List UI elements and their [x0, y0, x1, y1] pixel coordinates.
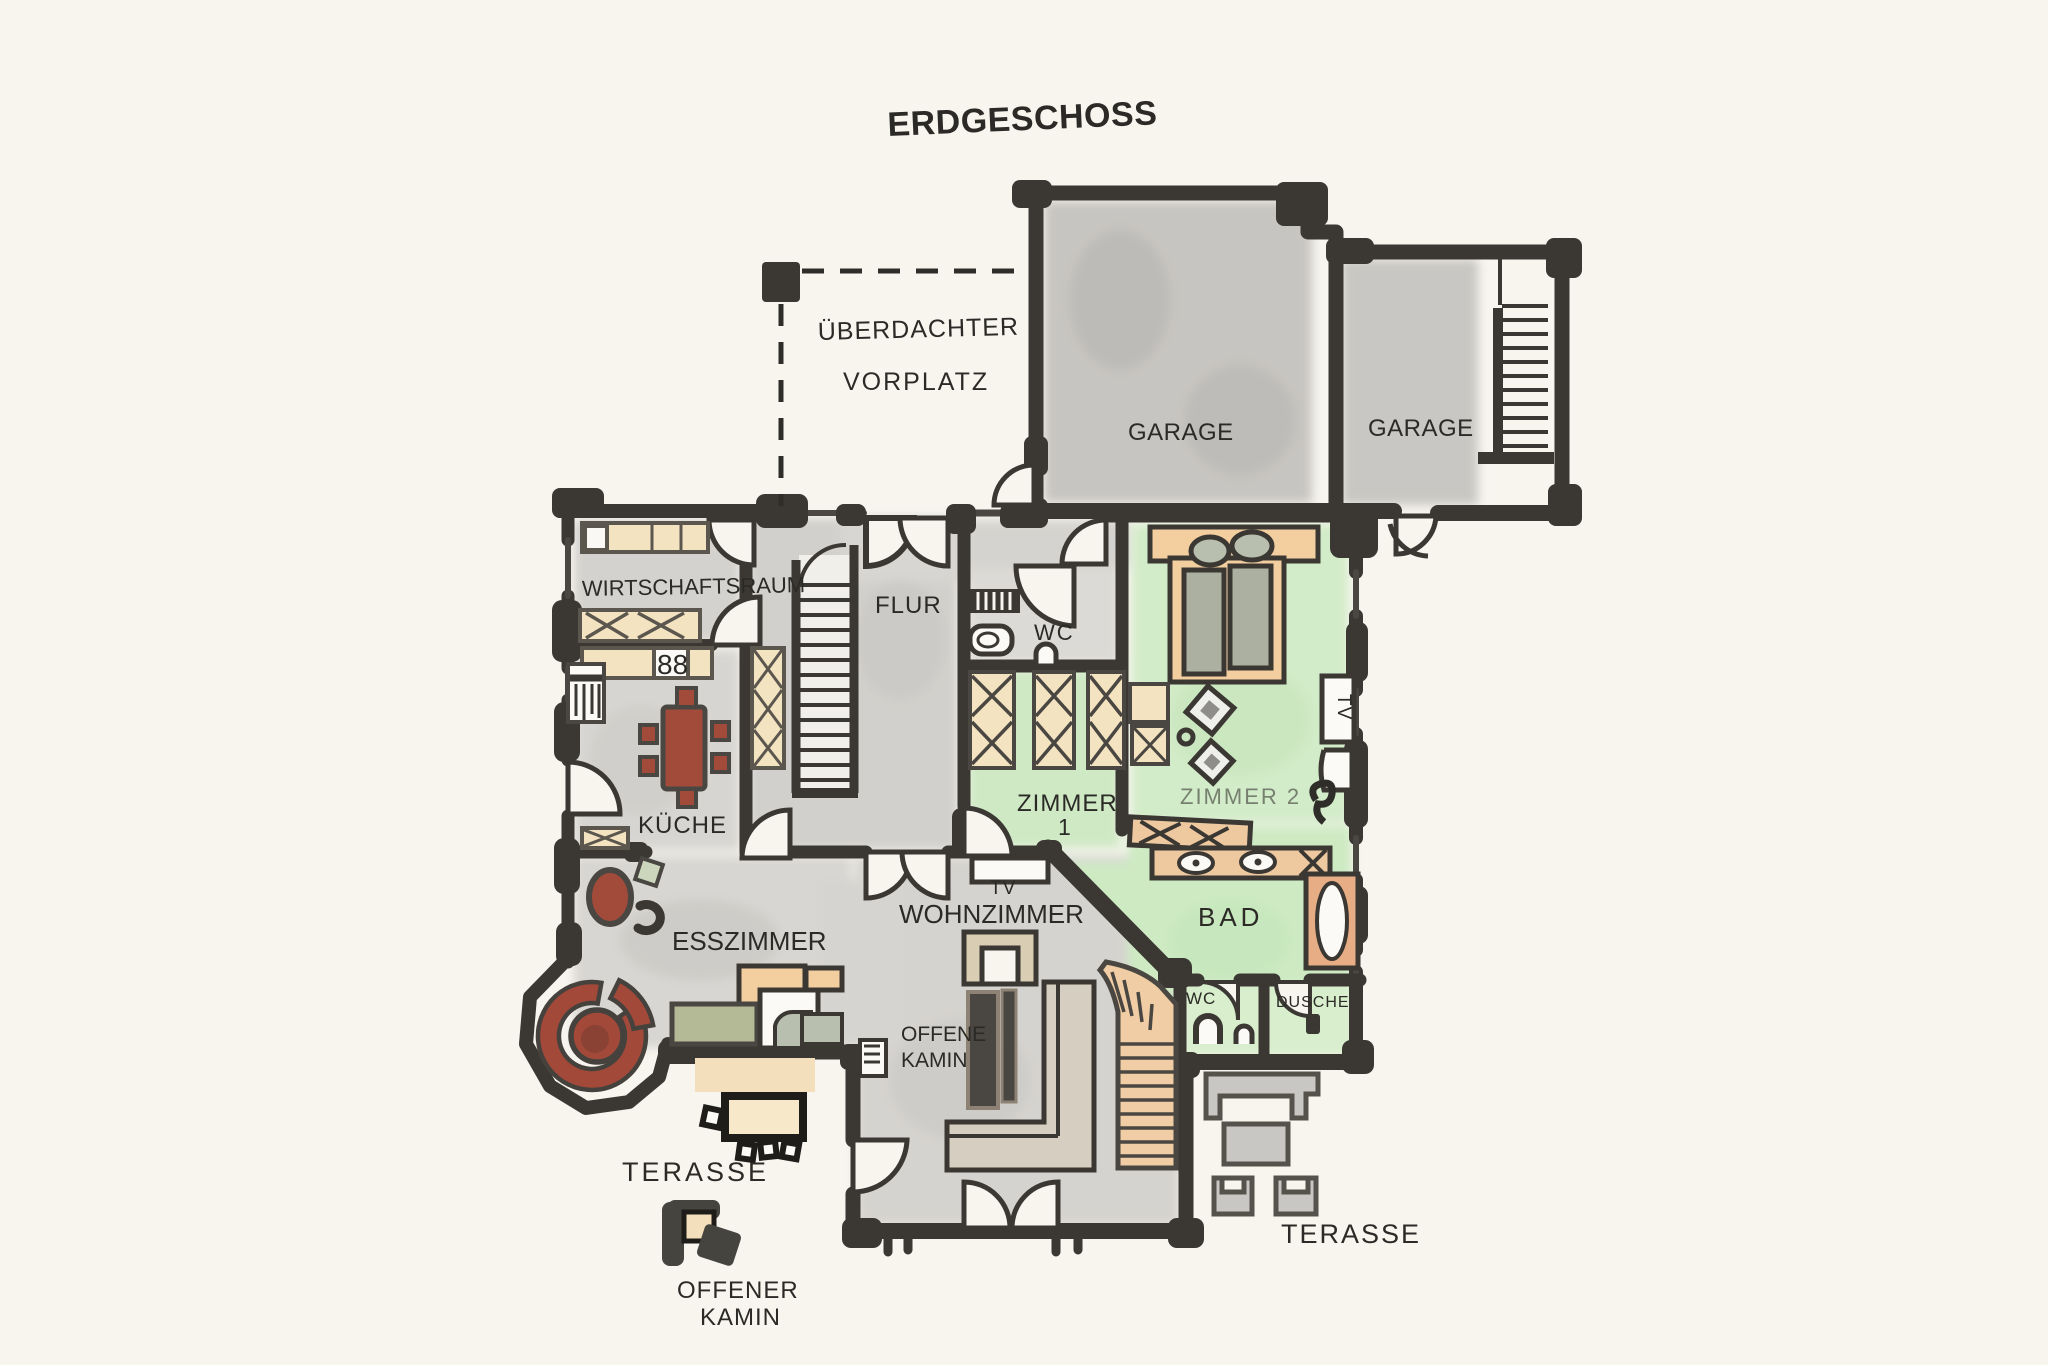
svg-text:KÜCHE: KÜCHE: [638, 812, 727, 839]
svg-text:OFFENER: OFFENER: [677, 1277, 799, 1304]
svg-text:TV: TV: [990, 878, 1016, 899]
svg-text:TERASSE: TERASSE: [1281, 1219, 1421, 1249]
svg-text:WC: WC: [1034, 620, 1075, 645]
svg-text:WOHNZIMMER: WOHNZIMMER: [899, 899, 1084, 929]
svg-text:OFFENE: OFFENE: [901, 1023, 986, 1046]
svg-text:DUSCHE: DUSCHE: [1276, 994, 1350, 1011]
svg-text:KAMIN: KAMIN: [901, 1049, 968, 1072]
svg-text:GARAGE: GARAGE: [1368, 415, 1474, 442]
svg-text:1: 1: [1058, 814, 1071, 840]
svg-text:TERASSE: TERASSE: [622, 1157, 769, 1187]
svg-text:GARAGE: GARAGE: [1128, 419, 1234, 446]
svg-text:TV: TV: [1333, 694, 1354, 720]
svg-text:VORPLATZ: VORPLATZ: [843, 368, 989, 396]
svg-text:FLUR: FLUR: [875, 592, 942, 619]
svg-text:88: 88: [657, 649, 688, 680]
svg-text:WIRTSCHAFTSRAUM: WIRTSCHAFTSRAUM: [582, 572, 806, 601]
svg-text:ESSZIMMER: ESSZIMMER: [672, 926, 827, 956]
svg-text:ZIMMER 2: ZIMMER 2: [1180, 784, 1301, 809]
svg-text:ZIMMER: ZIMMER: [1017, 790, 1118, 817]
svg-text:WC: WC: [1186, 989, 1216, 1008]
svg-text:ÜBERDACHTER: ÜBERDACHTER: [817, 313, 1019, 346]
svg-text:KAMIN: KAMIN: [700, 1304, 781, 1331]
svg-text:BAD: BAD: [1198, 902, 1263, 932]
